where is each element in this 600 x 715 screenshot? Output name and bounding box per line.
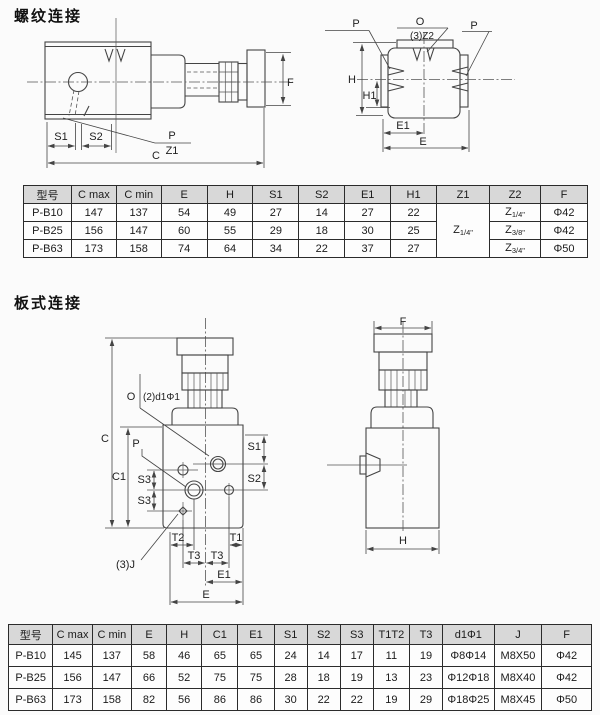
column-header: C1 (202, 625, 238, 645)
dim-label-t2: T2 (172, 532, 185, 544)
column-header: 型号 (24, 186, 72, 204)
value-cell: 64 (207, 240, 253, 258)
hole-label-j: (3)J (116, 559, 135, 571)
table-row: P-B25156147605529183025Z3/8"Φ42 (24, 222, 588, 240)
value-cell: 29 (253, 222, 299, 240)
dim-label-h: H (348, 74, 356, 86)
table-row: P-B63173158825686863022221929Φ18Φ25M8X45… (9, 689, 592, 711)
value-cell: 18 (307, 667, 340, 689)
value-cell: 49 (207, 204, 253, 222)
value-cell: 27 (345, 204, 391, 222)
value-cell: 27 (253, 204, 299, 222)
column-header: d1Φ1 (443, 625, 495, 645)
thread-label-z1: Z1 (166, 145, 179, 157)
column-header: T3 (409, 625, 442, 645)
table-row: P-B63173158746434223727Z3/4"Φ50 (24, 240, 588, 258)
value-cell: M8X45 (494, 689, 542, 711)
column-header: E (161, 186, 207, 204)
dim-label-e1: E1 (217, 569, 230, 581)
model-cell: P-B25 (9, 667, 53, 689)
value-cell: 147 (116, 222, 161, 240)
column-header: Z2 (490, 186, 541, 204)
value-cell: 22 (340, 689, 373, 711)
value-cell: 137 (116, 204, 161, 222)
column-header: S2 (299, 186, 345, 204)
column-header: S3 (340, 625, 373, 645)
value-cell: Φ8Φ14 (443, 645, 495, 667)
value-cell: 17 (340, 645, 373, 667)
value-cell: 66 (131, 667, 166, 689)
column-header: E1 (238, 625, 274, 645)
value-cell: Φ42 (541, 222, 588, 240)
value-cell: Φ50 (541, 240, 588, 258)
value-cell: Z1/4" (437, 204, 490, 258)
value-cell: Φ42 (542, 667, 592, 689)
threaded-dimensions-table: 型号C maxC minEHS1S2E1H1Z1Z2FP-B1014713754… (23, 185, 588, 258)
value-cell: 147 (71, 204, 116, 222)
value-cell: 30 (274, 689, 307, 711)
column-header: S1 (274, 625, 307, 645)
column-header: C min (92, 625, 131, 645)
value-cell: 19 (373, 689, 409, 711)
dim-label-t3-right: T3 (211, 550, 224, 562)
value-cell: 11 (373, 645, 409, 667)
value-cell: 14 (299, 204, 345, 222)
dim-label-s3-upper: S3 (138, 474, 151, 486)
value-cell: Φ12Φ18 (443, 667, 495, 689)
value-cell: Z1/4" (490, 204, 541, 222)
column-header: E (131, 625, 166, 645)
dim-label-s2: S2 (89, 131, 102, 143)
value-cell: M8X50 (494, 645, 542, 667)
dim-label-h: H (399, 535, 407, 547)
value-cell: 24 (274, 645, 307, 667)
value-cell: Φ18Φ25 (443, 689, 495, 711)
dim-label-t1: T1 (230, 532, 243, 544)
port-label-o: O (127, 391, 136, 403)
column-header: S1 (253, 186, 299, 204)
value-cell: 145 (53, 645, 92, 667)
model-cell: P-B10 (24, 204, 72, 222)
column-header: Z1 (437, 186, 490, 204)
value-cell: 86 (238, 689, 274, 711)
table-row: P-B10145137584665652414171119Φ8Φ14M8X50Φ… (9, 645, 592, 667)
dim-label-e1: E1 (396, 120, 409, 132)
value-cell: Φ42 (542, 645, 592, 667)
value-cell: 156 (53, 667, 92, 689)
value-cell: Φ42 (541, 204, 588, 222)
table-row: P-B25156147665275752818191323Φ12Φ18M8X40… (9, 667, 592, 689)
column-header: H1 (391, 186, 437, 204)
value-cell: 173 (71, 240, 116, 258)
value-cell: 19 (409, 645, 442, 667)
value-cell: 158 (92, 689, 131, 711)
value-cell: Φ50 (542, 689, 592, 711)
value-cell: 82 (131, 689, 166, 711)
dim-label-h1: H1 (362, 90, 376, 102)
value-cell: 19 (340, 667, 373, 689)
value-cell: 54 (161, 204, 207, 222)
value-cell: 18 (299, 222, 345, 240)
column-header: F (541, 186, 588, 204)
threaded-connection-drawings: F S1 S2 P Z1 C (0, 0, 600, 185)
column-header: S2 (307, 625, 340, 645)
value-cell: 58 (131, 645, 166, 667)
value-cell: 56 (167, 689, 202, 711)
column-header: C min (116, 186, 161, 204)
value-cell: 55 (207, 222, 253, 240)
dim-label-s2: S2 (248, 473, 261, 485)
value-cell: 22 (299, 240, 345, 258)
dim-label-f: F (287, 77, 294, 89)
value-cell: 75 (202, 667, 238, 689)
value-cell: 29 (409, 689, 442, 711)
value-cell: 27 (391, 240, 437, 258)
value-cell: 22 (391, 204, 437, 222)
value-cell: 65 (238, 645, 274, 667)
value-cell: 22 (307, 689, 340, 711)
column-header: C max (71, 186, 116, 204)
plate-dimensions-table: 型号C maxC minEHC1E1S1S2S3T1T2T3d1Φ1JFP-B1… (8, 624, 592, 711)
hole-label-d1: (2)d1Φ1 (143, 392, 180, 403)
column-header: 型号 (9, 625, 53, 645)
threaded-front-view: P P O (3)Z2 H H1 E1 E (325, 16, 515, 152)
value-cell: Z3/8" (490, 222, 541, 240)
value-cell: 37 (345, 240, 391, 258)
value-cell: 156 (71, 222, 116, 240)
dim-label-e: E (202, 589, 209, 601)
value-cell: Z3/4" (490, 240, 541, 258)
dim-label-s1: S1 (248, 441, 261, 453)
value-cell: 23 (409, 667, 442, 689)
dim-label-t3-left: T3 (188, 550, 201, 562)
dim-label-e: E (419, 136, 426, 148)
value-cell: 13 (373, 667, 409, 689)
model-cell: P-B63 (24, 240, 72, 258)
value-cell: 46 (167, 645, 202, 667)
value-cell: 65 (202, 645, 238, 667)
port-label-o: O (416, 16, 425, 28)
value-cell: M8X40 (494, 667, 542, 689)
plate-side-view: C C1 P O (2)d1Φ1 S3 S3 S1 S2 (101, 318, 268, 605)
column-header: T1T2 (373, 625, 409, 645)
dim-label-s3-lower: S3 (138, 495, 151, 507)
dim-label-c: C (152, 150, 160, 162)
plate-front-view: F H (327, 316, 439, 554)
column-header: H (167, 625, 202, 645)
threaded-side-view: F S1 S2 P Z1 C (27, 18, 294, 168)
value-cell: 14 (307, 645, 340, 667)
value-cell: 75 (238, 667, 274, 689)
column-header: C max (53, 625, 92, 645)
header-row: 型号C maxC minEHS1S2E1H1Z1Z2F (24, 186, 588, 204)
value-cell: 30 (345, 222, 391, 240)
plate-connection-drawings: C C1 P O (2)d1Φ1 S3 S3 S1 S2 (0, 290, 600, 620)
table-row: P-B10147137544927142722Z1/4"Z1/4"Φ42 (24, 204, 588, 222)
value-cell: 137 (92, 645, 131, 667)
port-label-p: P (168, 130, 175, 142)
dim-label-s1: S1 (54, 131, 67, 143)
column-header: J (494, 625, 542, 645)
model-cell: P-B25 (24, 222, 72, 240)
value-cell: 147 (92, 667, 131, 689)
value-cell: 52 (167, 667, 202, 689)
port-label-p-left: P (352, 18, 359, 30)
value-cell: 25 (391, 222, 437, 240)
dim-label-c: C (101, 433, 109, 445)
value-cell: 28 (274, 667, 307, 689)
catalog-page: 螺纹连接 (0, 0, 600, 715)
value-cell: 74 (161, 240, 207, 258)
value-cell: 158 (116, 240, 161, 258)
dim-label-c1: C1 (112, 471, 126, 483)
port-label-p-right: P (470, 20, 477, 32)
value-cell: 86 (202, 689, 238, 711)
value-cell: 34 (253, 240, 299, 258)
port-label-p: P (132, 438, 139, 450)
column-header: H (207, 186, 253, 204)
column-header: E1 (345, 186, 391, 204)
column-header: F (542, 625, 592, 645)
model-cell: P-B10 (9, 645, 53, 667)
value-cell: 60 (161, 222, 207, 240)
header-row: 型号C maxC minEHC1E1S1S2S3T1T2T3d1Φ1JF (9, 625, 592, 645)
model-cell: P-B63 (9, 689, 53, 711)
thread-label-z2: (3)Z2 (410, 31, 434, 42)
value-cell: 173 (53, 689, 92, 711)
